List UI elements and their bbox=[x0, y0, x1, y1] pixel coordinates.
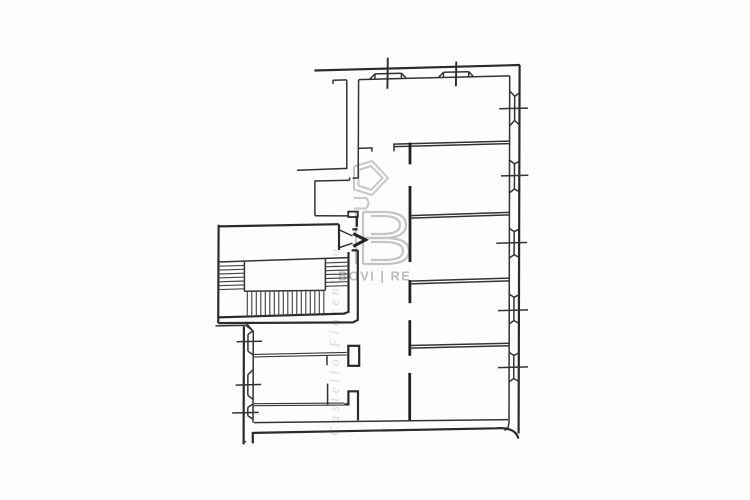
svg-text:Castello Fiorentino: Castello Fiorentino bbox=[327, 245, 342, 436]
